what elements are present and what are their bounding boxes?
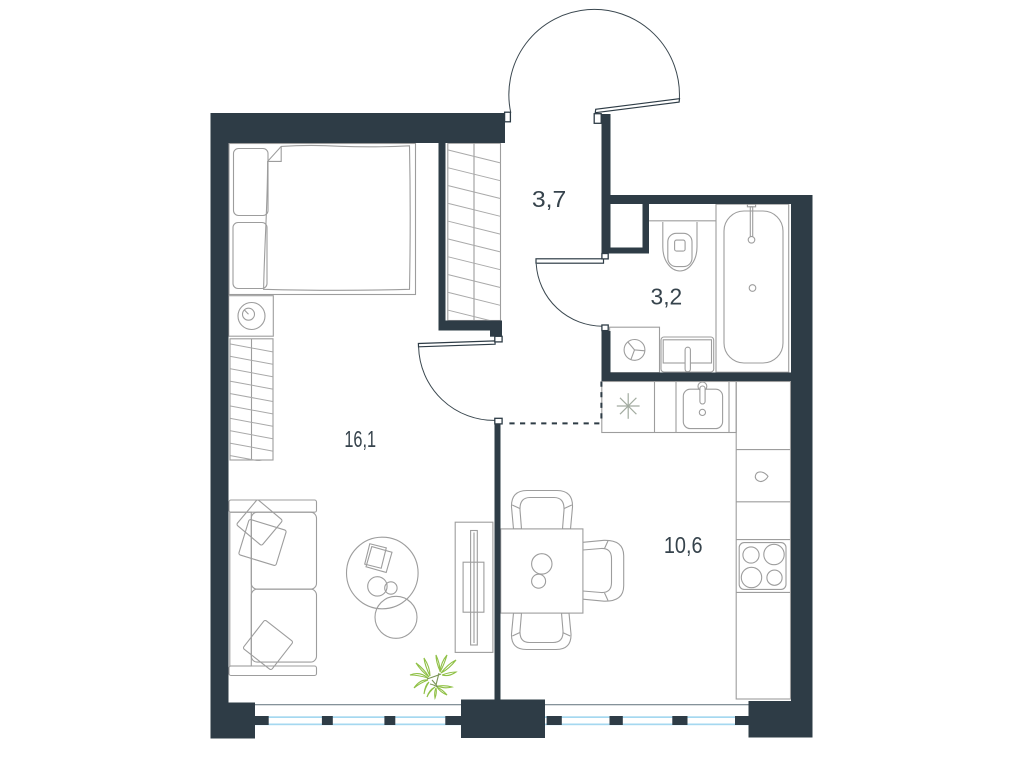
svg-text:16,1: 16,1 — [344, 426, 376, 452]
svg-text:3,2: 3,2 — [651, 284, 683, 310]
svg-text:10,6: 10,6 — [664, 532, 703, 558]
svg-text:3,7: 3,7 — [532, 186, 566, 212]
